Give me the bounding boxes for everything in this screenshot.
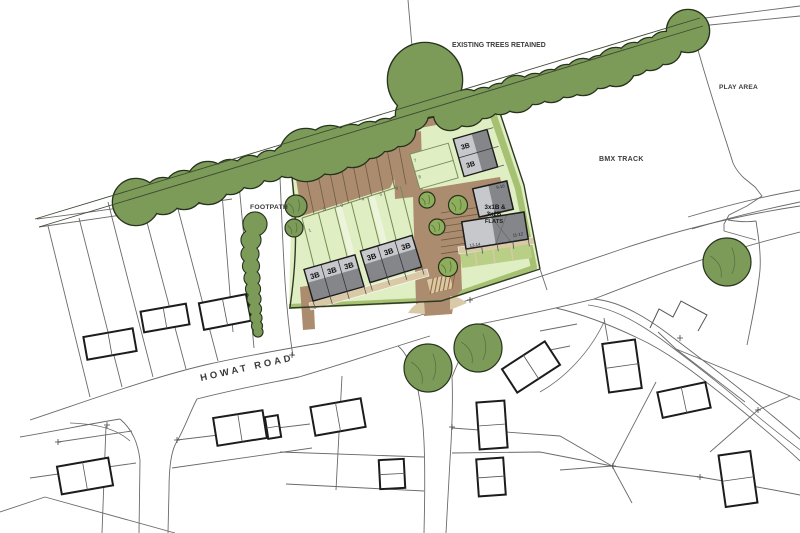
svg-text:FOOTPATH: FOOTPATH bbox=[250, 204, 288, 211]
svg-text:3x1B &: 3x1B & bbox=[485, 204, 507, 211]
svg-text:PLAY AREA: PLAY AREA bbox=[719, 84, 758, 91]
svg-text:BMX TRACK: BMX TRACK bbox=[599, 156, 644, 163]
svg-text:FLATS: FLATS bbox=[485, 219, 503, 225]
svg-text:EXISTING TREES RETAINED: EXISTING TREES RETAINED bbox=[452, 42, 546, 49]
svg-text:3x2B: 3x2B bbox=[487, 211, 502, 218]
